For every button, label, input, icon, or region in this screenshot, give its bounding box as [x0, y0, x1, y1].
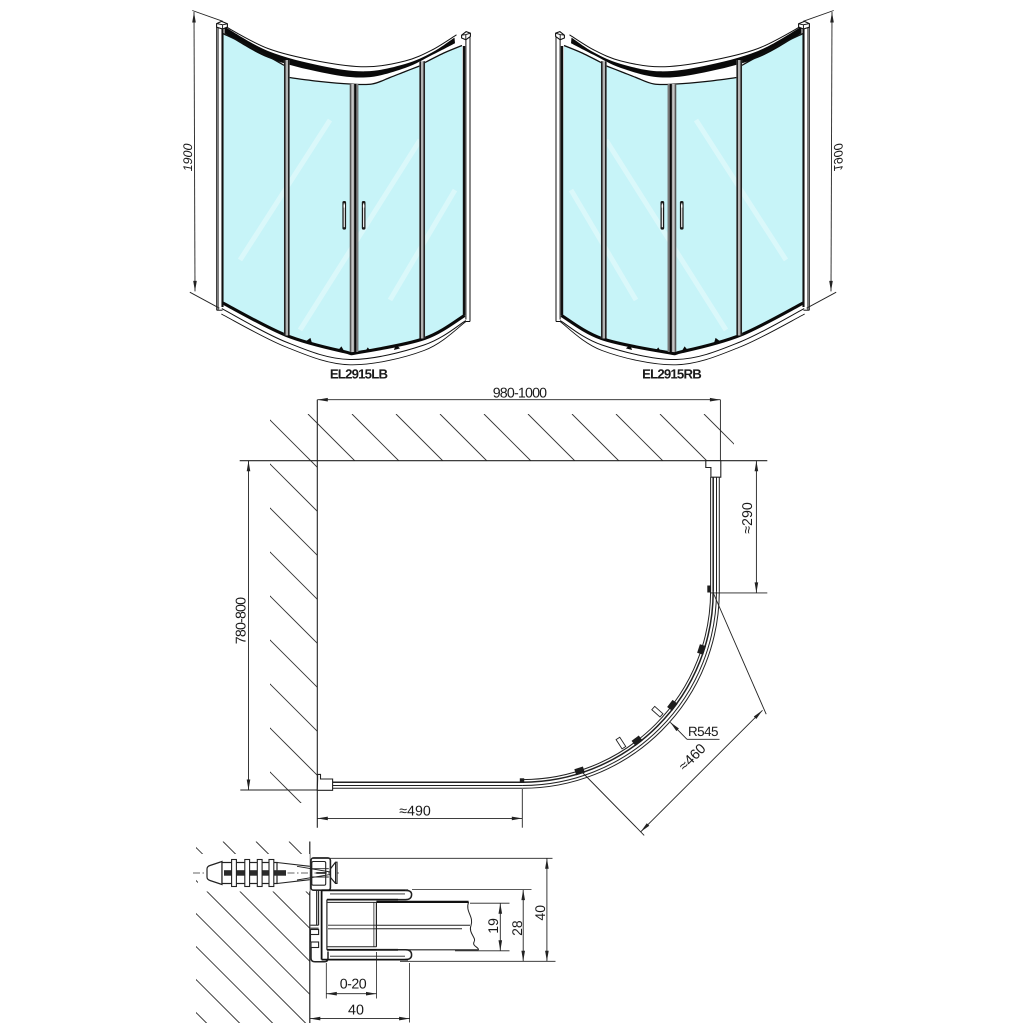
svg-text:980-1000: 980-1000: [493, 385, 547, 401]
svg-text:≈490: ≈490: [399, 804, 431, 820]
svg-text:780-800: 780-800: [234, 597, 250, 644]
svg-text:19: 19: [485, 918, 501, 934]
svg-text:≈290: ≈290: [740, 502, 756, 534]
svg-text:0-20: 0-20: [340, 977, 367, 993]
svg-text:40: 40: [532, 905, 548, 921]
svg-text:28: 28: [509, 920, 525, 936]
svg-text:EL2915RB: EL2915RB: [642, 367, 701, 382]
svg-text:EL2915LB: EL2915LB: [330, 367, 388, 382]
svg-text:R545: R545: [688, 724, 718, 739]
svg-text:40: 40: [348, 1003, 364, 1019]
